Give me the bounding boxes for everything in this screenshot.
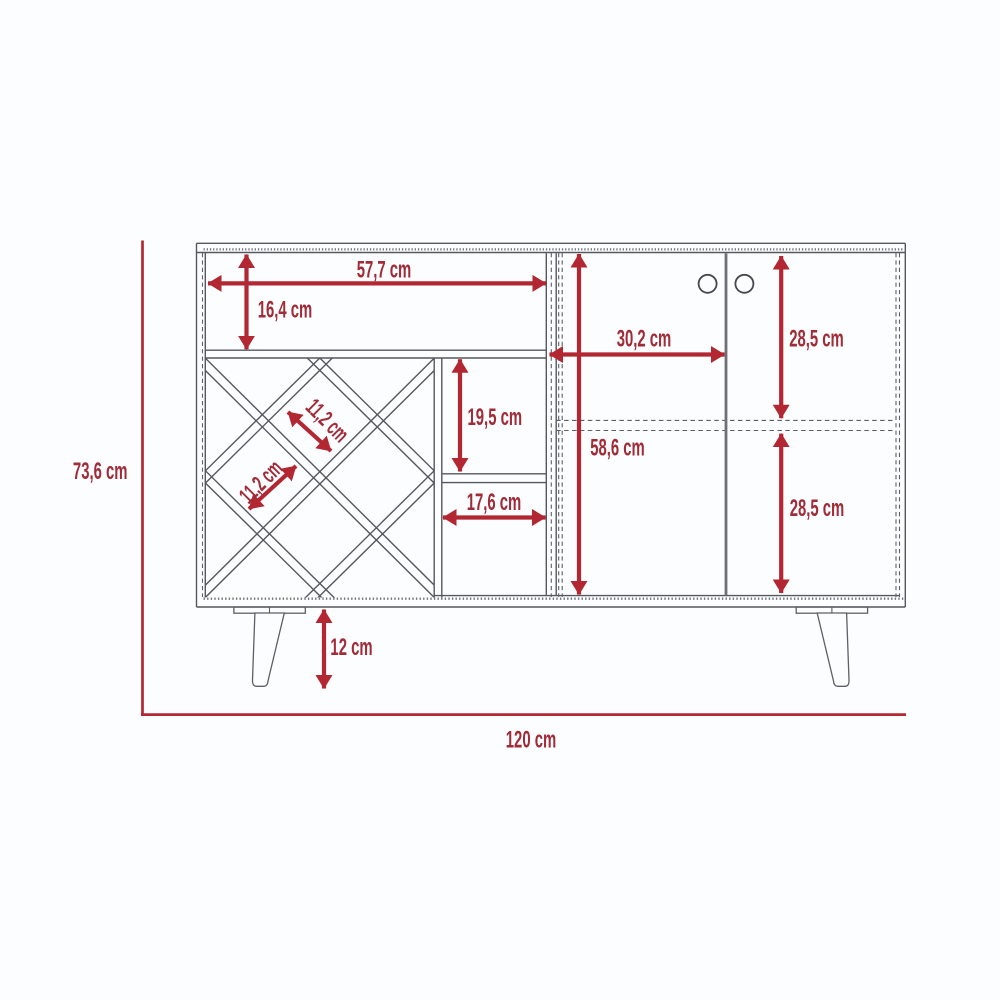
svg-text:28,5 cm: 28,5 cm bbox=[789, 326, 844, 352]
svg-text:12 cm: 12 cm bbox=[330, 635, 372, 661]
svg-text:28,5 cm: 28,5 cm bbox=[790, 496, 845, 522]
svg-text:11,2 cm: 11,2 cm bbox=[300, 395, 353, 448]
svg-text:17,6 cm: 17,6 cm bbox=[467, 490, 522, 516]
svg-text:57,7 cm: 57,7 cm bbox=[357, 257, 412, 283]
svg-text:58,6 cm: 58,6 cm bbox=[590, 435, 645, 461]
svg-text:120 cm: 120 cm bbox=[506, 727, 556, 753]
svg-text:73,6 cm: 73,6 cm bbox=[73, 459, 128, 485]
svg-text:30,2 cm: 30,2 cm bbox=[617, 326, 672, 352]
svg-text:19,5 cm: 19,5 cm bbox=[468, 404, 523, 430]
svg-text:16,4 cm: 16,4 cm bbox=[258, 297, 313, 323]
